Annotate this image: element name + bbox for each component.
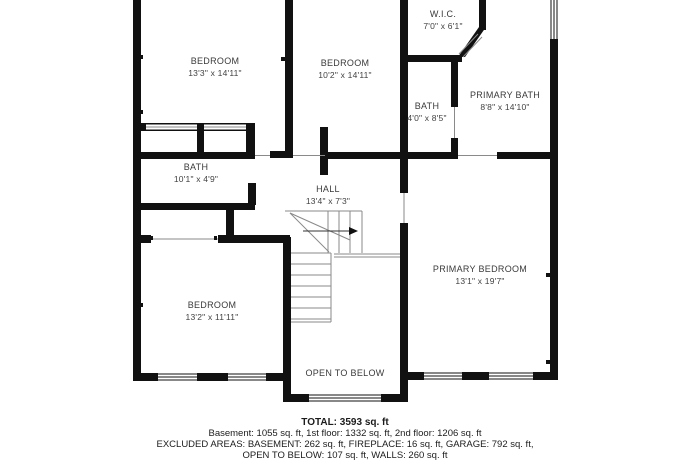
area-summary: TOTAL: 3593 sq. ft Basement: 1055 sq. ft… (0, 417, 690, 461)
wall-bath1-bottom (133, 203, 255, 210)
wall-stub-hall-left (270, 151, 286, 158)
window (157, 373, 198, 381)
room-name: BEDROOM (318, 57, 372, 69)
wall-bedroom3-bottom (133, 373, 291, 381)
wall-bath2-right-upper (451, 57, 458, 107)
room-label-primary-bedroom: PRIMARY BEDROOM 13'1" x 19'7" (433, 263, 527, 287)
room-label-bedroom-2: BEDROOM 10'2" x 14'11" (318, 57, 372, 81)
room-dims: 7'0" x 6'1" (423, 20, 462, 32)
window (488, 372, 534, 380)
room-name: HALL (306, 183, 350, 195)
room-dims: 8'8" x 14'10" (470, 101, 540, 113)
room-dims: 13'3" x 14'11" (188, 67, 242, 79)
wall-cased-stub (320, 127, 328, 175)
wall-bath1-right-stub (248, 183, 256, 205)
stair-winder (290, 213, 350, 240)
room-label-wic: W.I.C. 7'0" x 6'1" (423, 8, 462, 32)
staircase (285, 211, 400, 322)
room-label-bedroom-3: BEDROOM 13'2" x 11'11" (186, 299, 239, 323)
wall-bedroom3-top-left-stub (133, 235, 151, 243)
window (227, 373, 267, 381)
room-label-primary-bath: PRIMARY BATH 8'8" x 14'10" (470, 89, 540, 113)
room-name: BEDROOM (188, 55, 242, 67)
wall-wic-right (479, 0, 486, 30)
room-label-bath-2: BATH 4'0" x 8'5" (407, 100, 446, 124)
room-label-hall: HALL 13'4" x 7'3" (306, 183, 350, 207)
wall-primary-left (400, 223, 408, 402)
room-name: PRIMARY BEDROOM (433, 263, 527, 275)
closet-door (146, 124, 197, 130)
room-dims: 13'4" x 7'3" (306, 195, 350, 207)
window (423, 372, 463, 380)
window (308, 394, 382, 402)
room-dims: 13'2" x 11'11" (186, 311, 239, 323)
room-dims: 13'1" x 19'7" (433, 275, 527, 287)
wall-primary-bath-bottom (497, 152, 554, 159)
wall-bedroom-divider (285, 0, 293, 158)
summary-total: TOTAL: 3593 sq. ft (0, 417, 690, 428)
wall-bedroom3-top (218, 235, 290, 243)
wall-bath1-top (133, 152, 255, 159)
summary-excluded-areas: EXCLUDED AREAS: BASEMENT: 262 sq. ft, FI… (0, 439, 690, 450)
room-dims: 4'0" x 8'5" (407, 112, 446, 124)
wall-open-below-left (283, 237, 291, 402)
room-name: BEDROOM (186, 299, 239, 311)
summary-floors: Basement: 1055 sq. ft, 1st floor: 1332 s… (0, 428, 690, 439)
wall-hall-right-upper (400, 0, 408, 193)
room-label-open-to-below: OPEN TO BELOW (305, 367, 384, 379)
room-name: BATH (174, 161, 218, 173)
room-name: PRIMARY BATH (470, 89, 540, 101)
room-name: OPEN TO BELOW (305, 367, 384, 379)
stair-winder (290, 213, 329, 252)
room-name: BATH (407, 100, 446, 112)
room-name: W.I.C. (423, 8, 462, 20)
closet-door (204, 124, 246, 130)
wall-closet-stub-a (197, 123, 204, 157)
summary-excluded-areas-2: OPEN TO BELOW: 107 sq. ft, WALLS: 260 sq… (0, 450, 690, 461)
room-label-bedroom-1: BEDROOM 13'3" x 14'11" (188, 55, 242, 79)
room-dims: 10'1" x 4'9" (174, 173, 218, 185)
floor-plan-page: { "rooms": [ {"id": "bedroom-1", "name":… (0, 0, 690, 460)
wall-closet-stub-b (246, 123, 255, 157)
wall-hall-top (325, 152, 458, 159)
window (550, 0, 558, 40)
room-dims: 10'2" x 14'11" (318, 69, 372, 81)
wall-right (550, 40, 558, 380)
room-label-bath-1: BATH 10'1" x 4'9" (174, 161, 218, 185)
wall-stub-down (226, 210, 234, 237)
